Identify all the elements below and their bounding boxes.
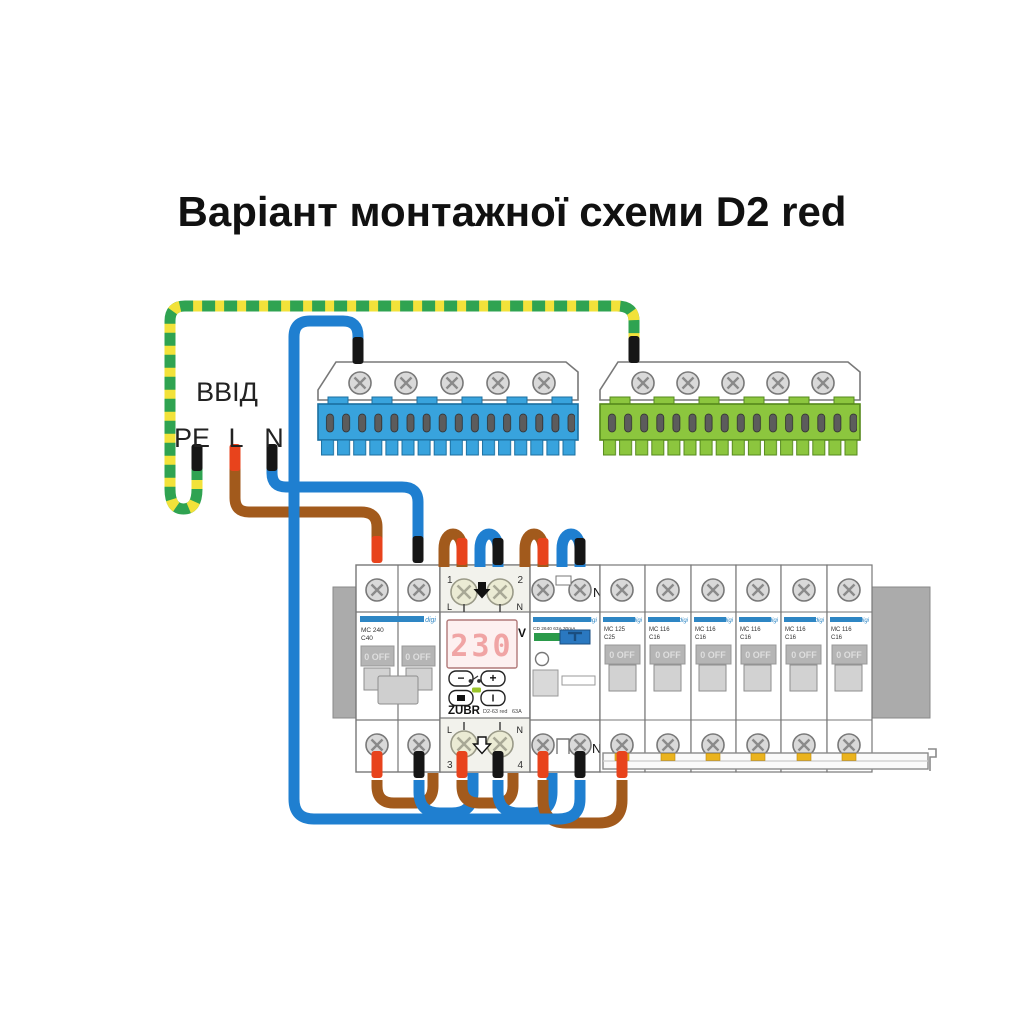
busbar-screw bbox=[812, 372, 834, 394]
breaker-rating: C16 bbox=[785, 635, 797, 641]
terminal-label-n: N bbox=[517, 602, 524, 612]
stop-button-icon bbox=[457, 695, 465, 701]
busbar-screw bbox=[722, 372, 744, 394]
joined-toggle-handle bbox=[378, 676, 418, 704]
off-indicator-text: 0 OFF bbox=[836, 650, 862, 660]
terminal-label-l: L bbox=[447, 602, 452, 612]
ferrule bbox=[617, 751, 628, 778]
terminal-screw bbox=[451, 579, 477, 605]
busbar-screw bbox=[533, 372, 555, 394]
terminal-screw bbox=[408, 579, 430, 601]
breaker-rating: C16 bbox=[831, 635, 843, 641]
breaker-model: MC 116 bbox=[785, 627, 806, 633]
off-indicator-text: 0 OFF bbox=[745, 650, 771, 660]
ferrule bbox=[493, 538, 504, 565]
zubr-rating: 63A bbox=[512, 709, 522, 715]
ferrule bbox=[457, 538, 468, 565]
din-rail-left bbox=[333, 587, 356, 718]
rcd-test-button bbox=[536, 653, 549, 666]
terminal-number-2: 2 bbox=[517, 575, 523, 586]
rcd-body-block bbox=[533, 670, 558, 696]
terminal-screw bbox=[569, 579, 591, 601]
terminal-screw bbox=[487, 579, 513, 605]
off-indicator-text: 0 OFF bbox=[405, 652, 431, 662]
pe-busbar bbox=[600, 362, 860, 456]
terminal-number-3: 3 bbox=[447, 760, 453, 771]
voltage-unit-label: V bbox=[518, 626, 526, 640]
brand-logo: digi bbox=[587, 617, 598, 624]
terminal-screw bbox=[657, 579, 679, 601]
brand-stripe bbox=[739, 617, 771, 622]
off-indicator-text: 0 OFF bbox=[364, 652, 390, 662]
ferrule bbox=[372, 536, 383, 563]
off-indicator-text: 0 OFF bbox=[655, 650, 681, 660]
pe-label: PE bbox=[174, 423, 210, 453]
brand-logo: digi bbox=[769, 618, 779, 624]
wire-l-input bbox=[235, 458, 377, 560]
dist-breaker: digi MC 116 C16 0 OFF bbox=[691, 565, 736, 772]
ferrule bbox=[538, 751, 549, 778]
dist-breaker: digi MC 116 C16 0 OFF bbox=[781, 565, 827, 772]
terminal-window bbox=[556, 576, 571, 585]
breaker-model: MC 240 bbox=[361, 627, 384, 634]
ferrule bbox=[457, 751, 468, 778]
breaker-toggle bbox=[609, 665, 636, 691]
input-label: ВВІД bbox=[196, 377, 258, 407]
zubr-brand: ZUBR bbox=[448, 705, 481, 717]
dist-breaker: digi MC 116 C16 0 OFF bbox=[827, 565, 872, 772]
brand-logo: digi bbox=[860, 618, 870, 624]
off-indicator-text: 0 OFF bbox=[700, 650, 726, 660]
ferrule bbox=[493, 751, 504, 778]
terminal-screw bbox=[702, 579, 724, 601]
zubr-voltage-relay: 1 2 L N 230 V − + I ZUBR D2-63 red 63A L… bbox=[440, 565, 530, 772]
terminal-label-n: N bbox=[517, 725, 524, 735]
brand-logo: digi bbox=[815, 618, 825, 624]
start-button-label: I bbox=[492, 694, 495, 705]
busbar-screw bbox=[632, 372, 654, 394]
ferrule bbox=[538, 538, 549, 565]
voltage-display-value: 230 bbox=[450, 629, 513, 664]
brand-logo: digi bbox=[633, 618, 643, 624]
brand-stripe bbox=[533, 617, 591, 622]
breaker-model: MC 125 bbox=[604, 627, 626, 633]
main-breaker-mc240: digi MC 240 C40 0 OFF 0 OFF bbox=[356, 565, 440, 772]
breaker-toggle bbox=[790, 665, 817, 691]
breaker-rating: C40 bbox=[361, 635, 373, 642]
terminal-screw bbox=[793, 579, 815, 601]
brand-stripe bbox=[360, 616, 424, 622]
breaker-rating: C25 bbox=[604, 635, 616, 641]
terminal-screw bbox=[611, 579, 633, 601]
busbar-screw bbox=[441, 372, 463, 394]
busbar-screw bbox=[767, 372, 789, 394]
breaker-rating: C16 bbox=[649, 635, 661, 641]
breaker-toggle bbox=[699, 665, 726, 691]
l-label: L bbox=[228, 423, 243, 453]
brand-stripe bbox=[694, 617, 726, 622]
wiring-diagram: Варіант монтажної схеми D2 red bbox=[0, 0, 1024, 1024]
busbar-screw bbox=[395, 372, 417, 394]
busbar-screw bbox=[349, 372, 371, 394]
terminal-number-1: 1 bbox=[447, 575, 453, 586]
terminal-label-l: L bbox=[447, 725, 452, 735]
busbar-screw bbox=[677, 372, 699, 394]
terminal-screw bbox=[747, 579, 769, 601]
brand-stripe bbox=[603, 617, 635, 622]
page-title: Варіант монтажної схеми D2 red bbox=[178, 188, 847, 235]
terminal-screw bbox=[532, 579, 554, 601]
rcd-breaker: N digi CD 2640 63A 30mA N bbox=[530, 565, 602, 772]
n-label: N bbox=[264, 423, 284, 453]
breaker-rating: C16 bbox=[695, 635, 707, 641]
terminal-screw bbox=[838, 579, 860, 601]
brand-logo: digi bbox=[679, 618, 689, 624]
ferrule bbox=[575, 538, 586, 565]
breaker-rating: C16 bbox=[740, 635, 752, 641]
dist-breaker: digi MC 116 C16 0 OFF bbox=[645, 565, 691, 772]
breaker-model: MC 116 bbox=[831, 627, 852, 633]
breaker-toggle bbox=[744, 665, 771, 691]
ferrule-pe-busbar bbox=[629, 336, 640, 363]
minus-button-label: − bbox=[457, 671, 464, 685]
breaker-model: MC 116 bbox=[649, 627, 670, 633]
status-led bbox=[472, 688, 481, 693]
ferrule bbox=[372, 751, 383, 778]
off-indicator-text: 0 OFF bbox=[609, 650, 635, 660]
brand-logo: digi bbox=[724, 618, 734, 624]
plus-button-label: + bbox=[489, 671, 496, 685]
rcd-body-slot bbox=[562, 676, 595, 685]
zubr-model: D2-63 red bbox=[483, 709, 507, 715]
terminal-notch bbox=[557, 739, 569, 754]
ferrule bbox=[414, 751, 425, 778]
dist-breaker: digi MC 116 C16 0 OFF bbox=[736, 565, 781, 772]
dist-breaker-row: digi MC 125 C25 0 OFF digi MC 116 C16 0 … bbox=[600, 565, 872, 772]
dist-breaker: digi MC 125 C25 0 OFF bbox=[600, 565, 645, 772]
brand-logo: digi bbox=[425, 617, 436, 624]
brand-stripe bbox=[830, 617, 862, 622]
terminal-screw bbox=[366, 579, 388, 601]
comb-end-bracket bbox=[928, 749, 936, 771]
breaker-toggle bbox=[654, 665, 681, 691]
din-rail-right bbox=[872, 587, 930, 718]
ferrule-n-busbar bbox=[353, 337, 364, 364]
breaker-model: MC 116 bbox=[695, 627, 716, 633]
ferrule bbox=[575, 751, 586, 778]
neutral-busbar bbox=[318, 362, 578, 456]
breaker-toggle bbox=[835, 665, 862, 691]
ferrule bbox=[413, 536, 424, 563]
brand-stripe bbox=[784, 617, 816, 622]
wiring-scheme-page: Варіант монтажної схеми D2 red bbox=[0, 0, 1024, 1024]
busbar-screw bbox=[487, 372, 509, 394]
terminal-number-4: 4 bbox=[517, 760, 523, 771]
off-indicator-text: 0 OFF bbox=[791, 650, 817, 660]
brand-stripe bbox=[648, 617, 680, 622]
breaker-model: MC 116 bbox=[740, 627, 761, 633]
